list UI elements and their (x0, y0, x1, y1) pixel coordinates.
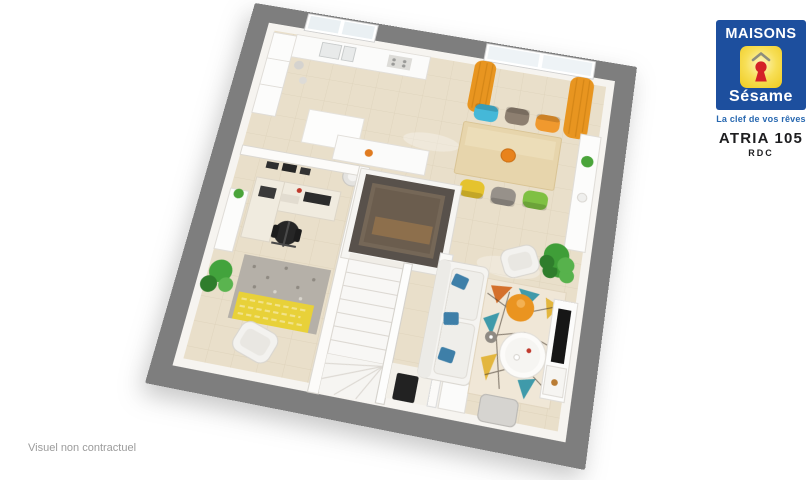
floorplan-svg (145, 3, 637, 470)
logo-yellow-square (740, 46, 782, 88)
plan-model-title: ATRIA 105 (700, 130, 811, 147)
disclaimer-note: Visuel non contractuel (28, 442, 136, 454)
sofa-pillow (443, 312, 458, 325)
logo-text-maisons: MAISONS (716, 26, 806, 42)
plan-floor-label: RDC (700, 148, 811, 158)
maisons-sesame-logo: MAISONS Sésame (716, 20, 806, 110)
floorplan-3d (0, 0, 811, 480)
kitchen-sink (319, 42, 342, 59)
brand-tagline: La clef de vos rêves (710, 114, 811, 124)
logo-text-sesame: Sésame (716, 88, 806, 106)
keyhole-icon (740, 46, 782, 88)
